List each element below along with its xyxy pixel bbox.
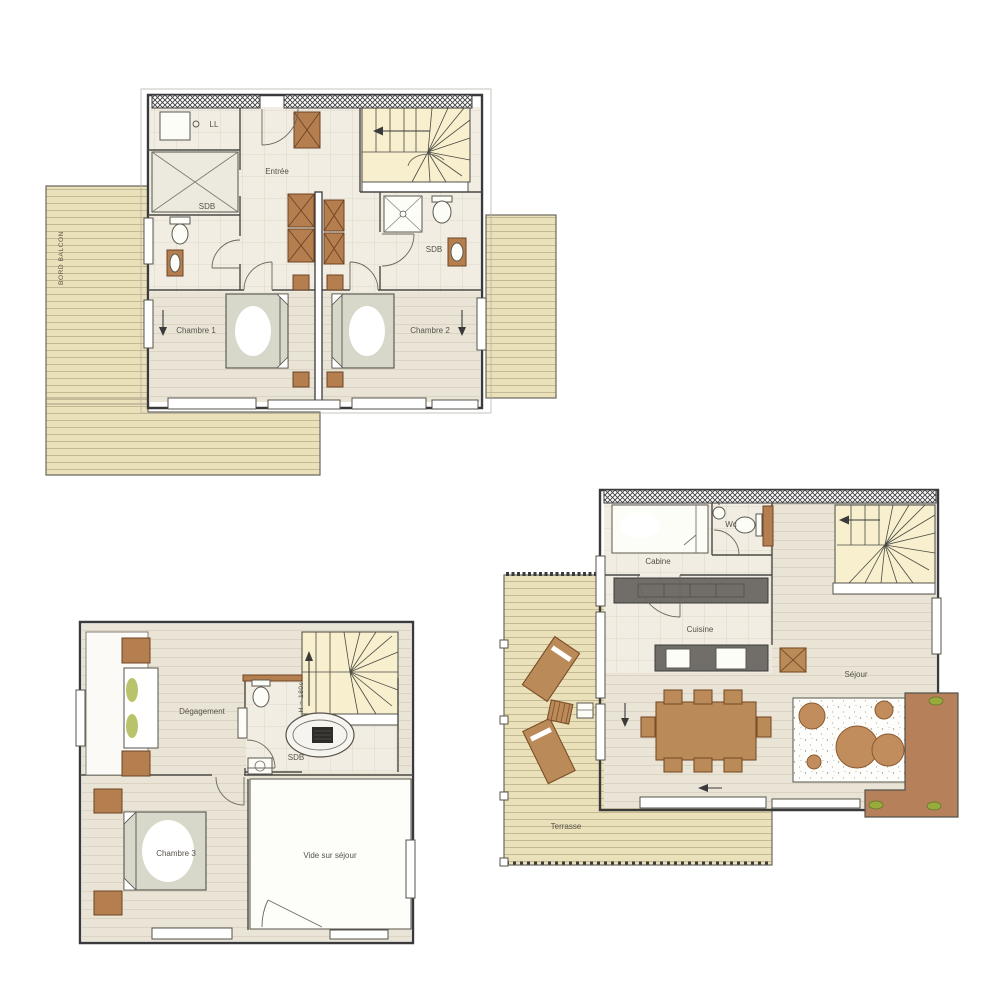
shower [384, 196, 422, 232]
washbasin [248, 758, 272, 774]
wc-label: Wc [725, 520, 737, 529]
winder-staircase-upper [362, 108, 470, 192]
washbasin [167, 250, 183, 276]
bath1-label: SDB [199, 202, 215, 211]
closet [152, 152, 238, 212]
plan-ground-floor: Terrasse [500, 490, 958, 866]
cross-table [780, 648, 806, 672]
living-label: Séjour [844, 670, 867, 679]
entry-cupboard [294, 112, 320, 148]
floorplan-sheet: BORD BALCON [0, 0, 1000, 1000]
bath2-label: SDB [426, 245, 442, 254]
entry-label: Entrée [265, 167, 289, 176]
terrace-label: Terrasse [551, 822, 582, 831]
toilet [170, 217, 190, 244]
washbasin [448, 238, 466, 266]
winder-staircase-attic [302, 632, 398, 725]
plan-attic-floor: H = 180cm Dégagement [76, 622, 415, 943]
kitchen-label: Cuisine [687, 625, 714, 634]
rug [793, 698, 921, 782]
laundry-label: LL [210, 120, 219, 129]
side-table [577, 703, 593, 718]
floorplan-drawing: BORD BALCON [0, 0, 1000, 1000]
bathtub [286, 713, 354, 757]
bedroom3-label: Chambre 3 [156, 849, 196, 858]
balcony-label: BORD BALCON [58, 231, 65, 285]
bedroom1-label: Chambre 1 [176, 326, 216, 335]
kitchen-island [655, 645, 768, 671]
toilet [252, 680, 270, 707]
plan-upper-floor: BORD BALCON [46, 89, 556, 475]
void-label: Vide sur séjour [303, 851, 357, 860]
slatted-table [547, 700, 573, 724]
bed-chambre1 [226, 294, 288, 368]
bath3-label: SDB [288, 753, 304, 762]
closet-column [86, 632, 158, 776]
bedroom2-label: Chambre 2 [410, 326, 450, 335]
cabin-label: Cabine [645, 557, 671, 566]
toilet [432, 196, 452, 223]
cabin-bed [612, 505, 708, 553]
hall-label: Dégagement [179, 707, 226, 716]
side-deck [486, 215, 556, 398]
bed-chambre2 [332, 294, 394, 368]
kitchen-counter-top [614, 578, 768, 603]
dining-table [641, 690, 771, 772]
winder-staircase-ground [833, 505, 935, 594]
